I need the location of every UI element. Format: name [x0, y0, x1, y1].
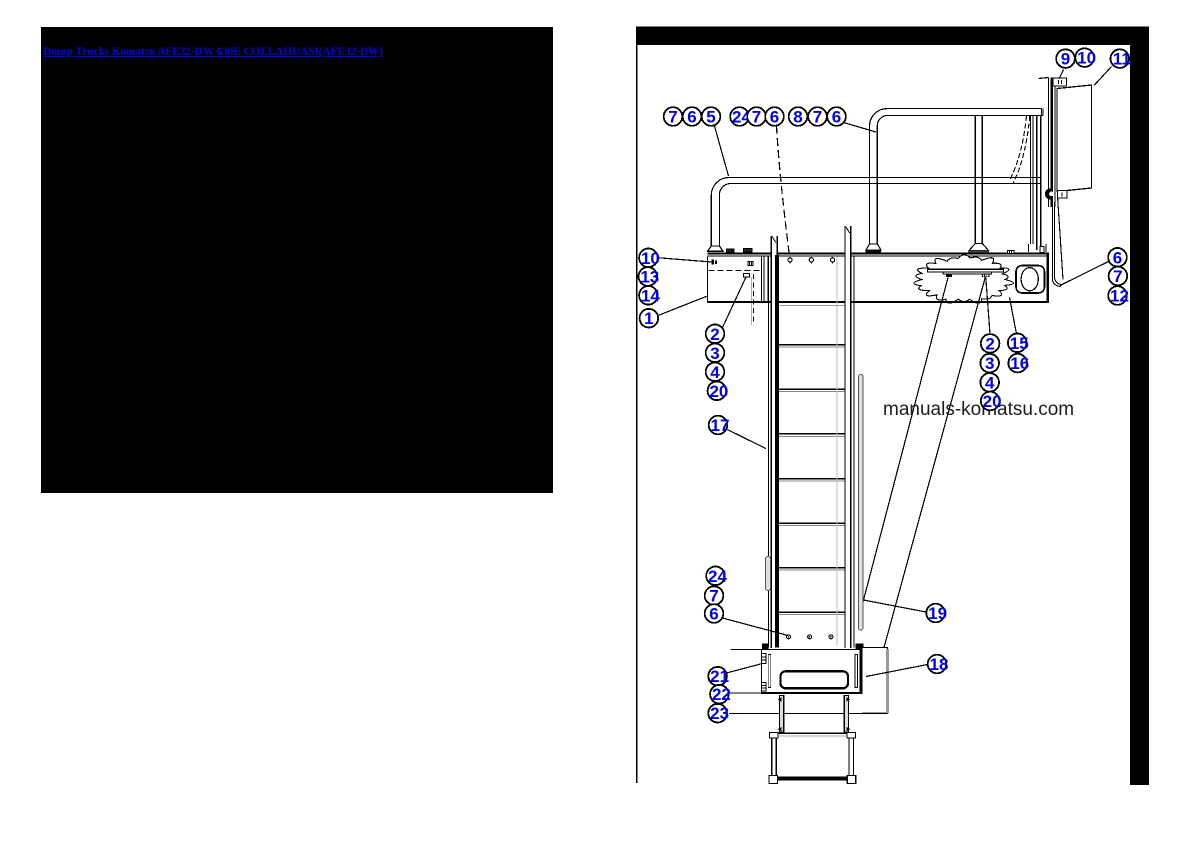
svg-text:13: 13: [640, 268, 659, 287]
svg-text:6: 6: [1113, 248, 1122, 267]
svg-text:6: 6: [687, 108, 696, 127]
svg-text:3: 3: [985, 354, 994, 373]
svg-text:7: 7: [813, 108, 822, 127]
svg-text:8: 8: [793, 108, 802, 127]
svg-text:10: 10: [641, 249, 660, 268]
svg-text:23: 23: [710, 704, 729, 723]
svg-text:9: 9: [1061, 50, 1070, 69]
svg-text:6: 6: [770, 108, 779, 127]
svg-text:24: 24: [708, 567, 727, 586]
svg-text:16: 16: [1010, 354, 1029, 373]
svg-text:10: 10: [1077, 49, 1096, 68]
svg-text:2: 2: [710, 325, 719, 344]
svg-text:20: 20: [983, 392, 1002, 411]
svg-text:15: 15: [1010, 334, 1029, 353]
svg-text:7: 7: [668, 108, 677, 127]
svg-text:4: 4: [985, 373, 995, 392]
svg-text:17: 17: [711, 416, 730, 435]
svg-text:18: 18: [930, 655, 949, 674]
svg-text:6: 6: [832, 108, 841, 127]
svg-text:21: 21: [710, 667, 729, 686]
svg-text:22: 22: [712, 685, 731, 704]
svg-text:1: 1: [644, 309, 653, 328]
svg-text:7: 7: [1113, 267, 1122, 286]
svg-text:7: 7: [709, 587, 718, 606]
svg-text:7: 7: [752, 108, 761, 127]
svg-text:20: 20: [709, 382, 728, 401]
svg-text:12: 12: [1110, 287, 1129, 306]
svg-text:2: 2: [985, 334, 994, 353]
svg-text:4: 4: [710, 363, 720, 382]
svg-text:5: 5: [706, 108, 715, 127]
svg-text:3: 3: [710, 344, 719, 363]
svg-text:6: 6: [709, 605, 718, 624]
svg-text:19: 19: [928, 604, 947, 623]
svg-text:14: 14: [641, 286, 660, 305]
svg-text:manuals-komatsu.com: manuals-komatsu.com: [883, 399, 1074, 420]
svg-text:11: 11: [1113, 50, 1131, 69]
